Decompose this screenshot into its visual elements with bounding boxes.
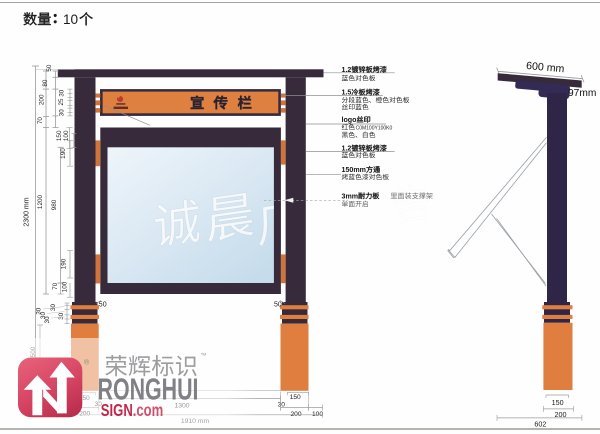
svg-text:150: 150 [552,398,564,407]
svg-text:97mm: 97mm [568,88,596,99]
svg-text:100: 100 [312,411,323,418]
svg-text:30: 30 [59,109,66,116]
svg-text:150: 150 [290,394,301,401]
svg-text:200: 200 [290,411,301,418]
svg-text:2300 mm: 2300 mm [24,197,31,226]
svg-text:50: 50 [274,302,282,309]
svg-text:70: 70 [52,282,59,290]
svg-text:SIGN.com: SIGN.com [101,400,164,420]
svg-text:980: 980 [51,199,58,210]
svg-text:190: 190 [61,258,68,269]
svg-text:50: 50 [46,64,53,72]
svg-text:200: 200 [39,94,46,105]
svg-text:1.5: 1.5 [342,89,352,97]
svg-text:1200: 1200 [37,194,44,209]
svg-text:logo: logo [342,116,358,124]
svg-text:200: 200 [555,410,567,419]
svg-text:25: 25 [58,98,65,105]
svg-text:70: 70 [37,117,44,125]
svg-text:1.2: 1.2 [342,145,352,153]
svg-text:30: 30 [59,89,66,96]
svg-text:3mm: 3mm [342,192,359,200]
svg-text:80: 80 [42,79,49,87]
svg-text:50: 50 [99,302,107,309]
svg-text:30: 30 [44,316,51,323]
svg-text:™: ™ [201,353,207,360]
svg-text:100: 100 [62,281,69,292]
svg-text:C0M100Y100K0: C0M100Y100K0 [356,126,393,132]
svg-text:150mm: 150mm [342,166,366,174]
svg-text:10: 10 [63,12,79,27]
svg-text:150: 150 [56,130,63,141]
svg-text:1.2: 1.2 [342,66,352,74]
svg-text:®: ® [84,359,90,367]
svg-text:190: 190 [60,148,67,159]
svg-text:100: 100 [63,130,70,141]
svg-text:30: 30 [58,312,65,319]
svg-text:602: 602 [534,419,546,428]
